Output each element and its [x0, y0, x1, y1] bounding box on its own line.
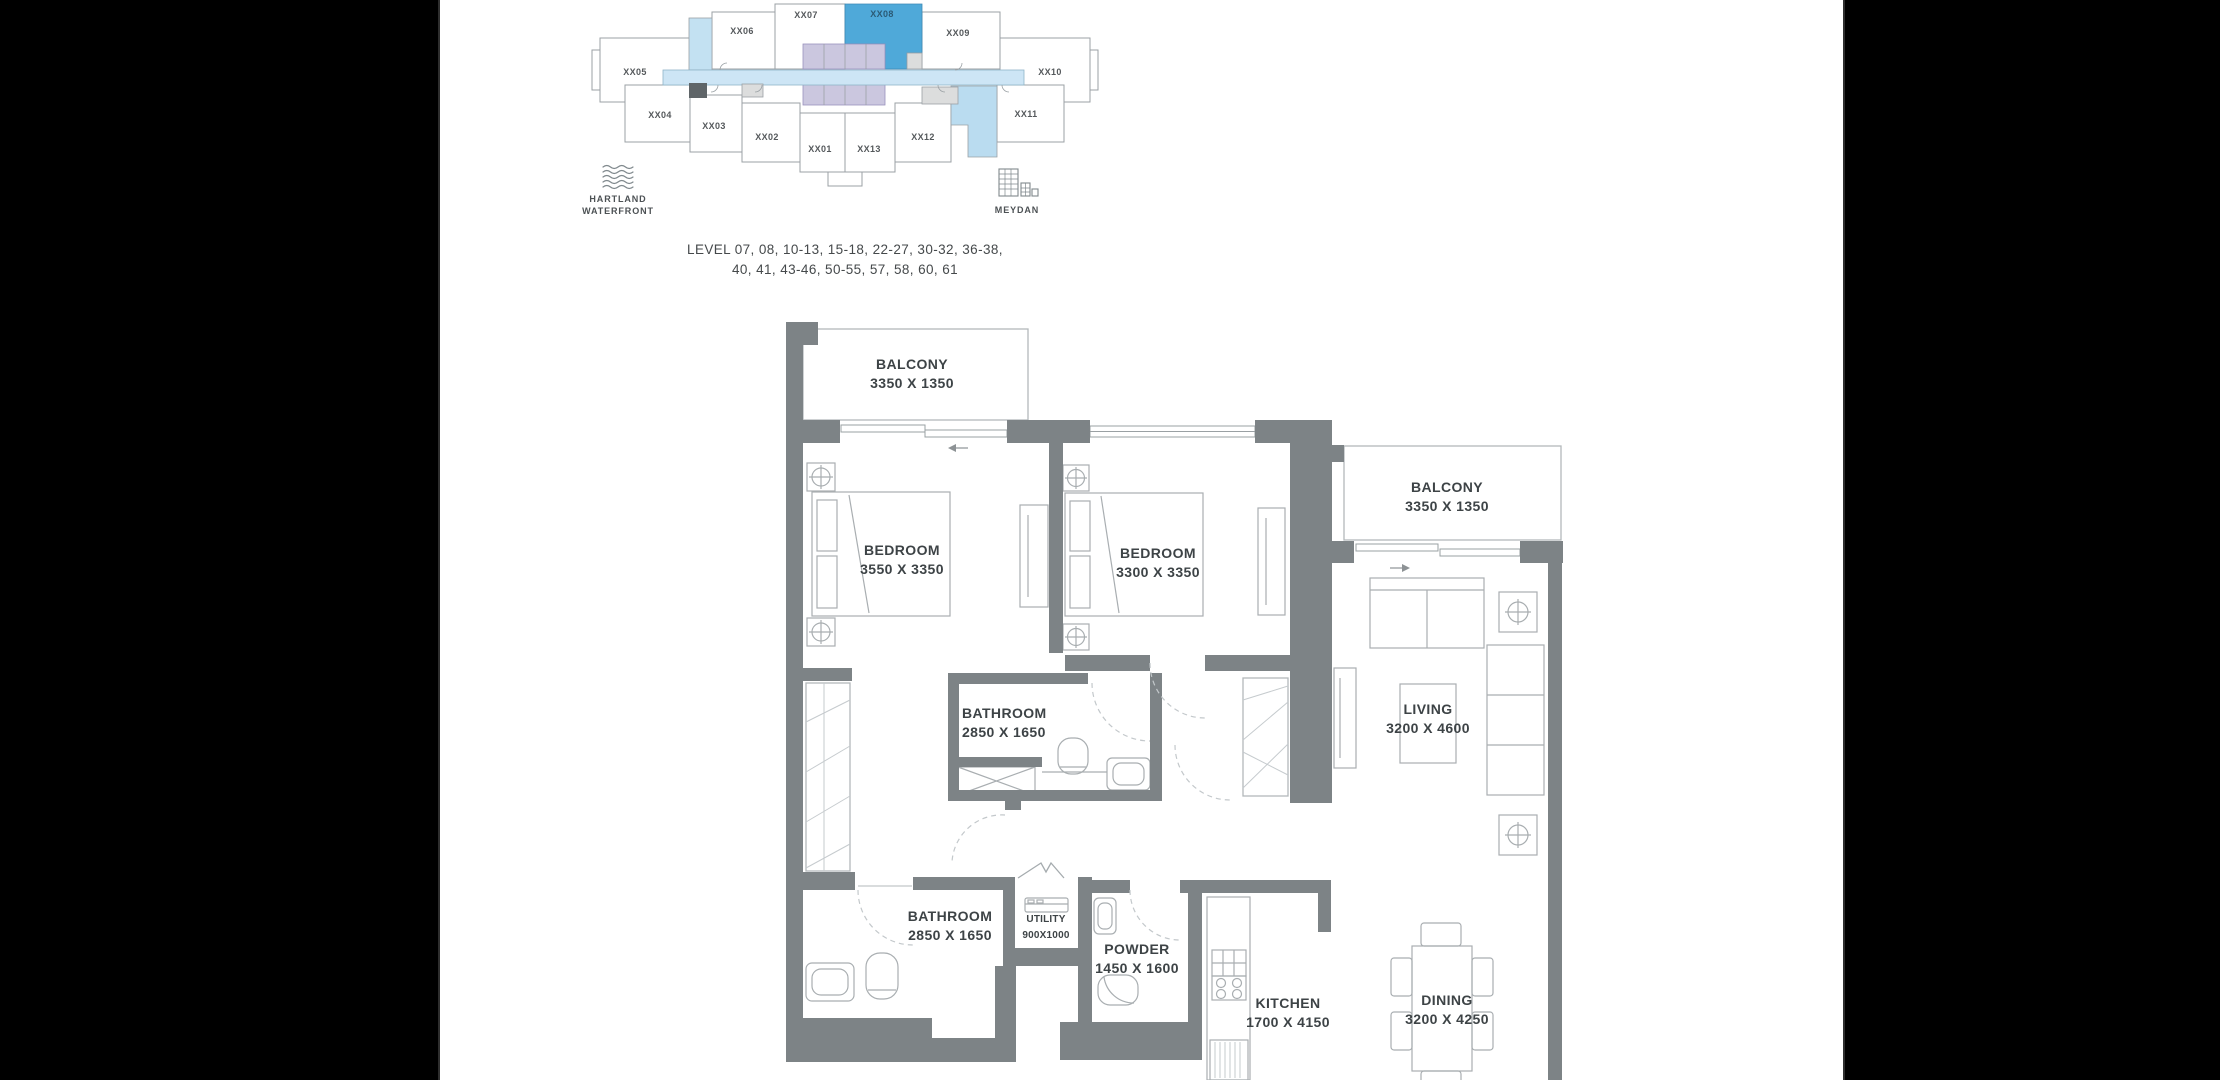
- dark-core-square: [689, 83, 707, 98]
- room-dims: 1450 X 1600: [1095, 960, 1179, 976]
- room-dims: 900X1000: [1022, 930, 1069, 941]
- room-name: KITCHEN: [1255, 995, 1320, 1011]
- unit-label: XX09: [946, 28, 970, 38]
- room-name: BALCONY: [876, 356, 948, 372]
- gray-notch: [907, 53, 922, 69]
- room-name: BATHROOM: [962, 705, 1047, 721]
- room-name: BALCONY: [1411, 479, 1483, 495]
- letterbox: [0, 0, 2220, 1080]
- room-dims: 3200 X 4600: [1386, 720, 1470, 736]
- room-name: BEDROOM: [1120, 545, 1196, 561]
- corridor-strip: [663, 70, 1024, 85]
- room-dims: 2850 X 1650: [908, 927, 992, 943]
- room-dims: 3200 X 4250: [1405, 1011, 1489, 1027]
- page-canvas: [440, 0, 1843, 1080]
- landmark-label: WATERFRONT: [582, 206, 654, 216]
- window-icon: [841, 425, 925, 432]
- core-block: [803, 44, 885, 69]
- unit-label: XX13: [857, 144, 881, 154]
- unit-label: XX10: [1038, 67, 1062, 77]
- core-block: [803, 82, 885, 105]
- unit-label: XX02: [755, 132, 779, 142]
- unit-label: XX05: [623, 67, 647, 77]
- room-name: BEDROOM: [864, 542, 940, 558]
- unit-label: XX11: [1014, 109, 1037, 119]
- unit-label: XX03: [702, 121, 726, 131]
- room-dims: 1700 X 4150: [1246, 1014, 1330, 1030]
- window-icon: [1356, 544, 1438, 551]
- landmark-label: HARTLAND: [589, 194, 646, 204]
- room-name: UTILITY: [1026, 914, 1065, 925]
- room-name: POWDER: [1104, 941, 1169, 957]
- floorplan-page: XX05 XX06 XX07 XX08 XX09 XX10 XX04 XX03 …: [0, 0, 2220, 1080]
- window-icon: [925, 430, 1007, 437]
- levels-line-1: LEVEL 07, 08, 10-13, 15-18, 22-27, 30-32…: [687, 242, 1003, 257]
- landmark-label: MEYDAN: [995, 205, 1039, 215]
- levels-line-2: 40, 41, 43-46, 50-55, 57, 58, 60, 61: [732, 262, 958, 277]
- room-dims: 3550 X 3350: [860, 561, 944, 577]
- room-name: LIVING: [1403, 701, 1452, 717]
- room-dims: 3350 X 1350: [870, 375, 954, 391]
- room-dims: 3300 X 3350: [1116, 564, 1200, 580]
- unit-label-highlighted: XX08: [870, 9, 894, 19]
- unit-label: XX07: [794, 10, 818, 20]
- room-name: BATHROOM: [908, 908, 993, 924]
- light-blue-strip: [689, 18, 712, 70]
- room-dims: 2850 X 1650: [962, 724, 1046, 740]
- unit-label: XX06: [730, 26, 754, 36]
- unit-label: XX01: [808, 144, 832, 154]
- unit-label: XX04: [648, 110, 672, 120]
- room-name: DINING: [1421, 992, 1472, 1008]
- room-dims: 3350 X 1350: [1405, 498, 1489, 514]
- unit-label: XX12: [911, 132, 935, 142]
- window-icon: [1440, 549, 1520, 556]
